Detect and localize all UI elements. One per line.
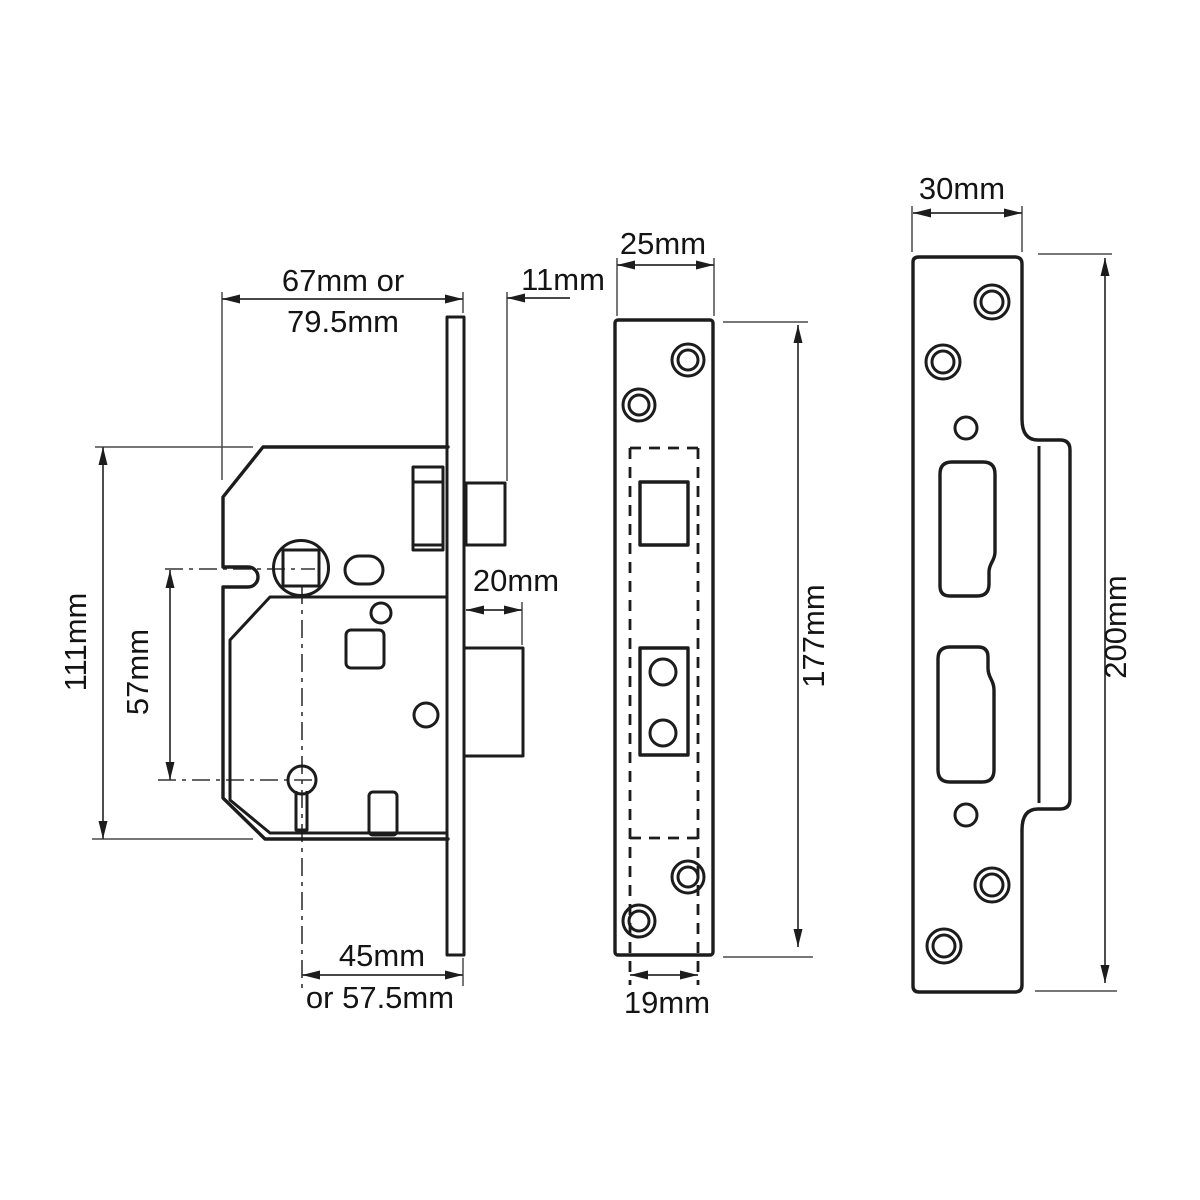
- spindle-square-hole: [283, 550, 319, 586]
- fixing-hole: [371, 603, 391, 623]
- dimension-spindle-to-key: 57mm: [120, 570, 170, 780]
- diagram-canvas: 67mm or 79.5mm 11mm 111mm 57mm 20mm: [0, 0, 1200, 1200]
- dimension-latch-projection: 11mm: [507, 262, 605, 481]
- forend-side: [447, 317, 464, 955]
- dimension-faceplate-width: 25mm: [617, 226, 714, 316]
- bolt-pin: [650, 659, 676, 685]
- dimension-bolt-throw: 20mm: [466, 563, 559, 645]
- label-faceplate-height: 177mm: [796, 584, 831, 687]
- latch-follower-block: [413, 467, 443, 550]
- bottom-slot: [369, 792, 397, 835]
- strike-plate-outline: [913, 257, 1070, 992]
- latch-bolt: [466, 483, 505, 545]
- dimension-strike-height: 200mm: [1035, 254, 1133, 991]
- label-strike-height: 200mm: [1098, 575, 1133, 678]
- strike-deadbolt-opening: [938, 647, 994, 782]
- screw-hole: [672, 861, 704, 893]
- label-faceplate-width: 25mm: [620, 226, 706, 261]
- deadbolt-front: [640, 648, 688, 755]
- label-backset-alt: or 57.5mm: [306, 980, 454, 1015]
- lock-body-view: 67mm or 79.5mm 11mm 111mm 57mm 20mm: [58, 262, 605, 1015]
- screw-hole: [926, 345, 960, 379]
- follower-slot: [345, 556, 383, 584]
- dimension-faceplate-height: 177mm: [723, 322, 831, 957]
- dimension-strike-width: 30mm: [912, 171, 1022, 252]
- deadbolt: [464, 648, 523, 756]
- fixing-hole: [955, 804, 977, 826]
- strike-plate-view: 30mm 200mm: [912, 171, 1133, 992]
- strike-latch-opening: [940, 462, 995, 596]
- latch-front: [640, 482, 688, 545]
- screw-hole: [975, 285, 1009, 319]
- screw-hole: [975, 868, 1009, 902]
- screw-hole: [672, 344, 704, 376]
- dimension-backset: 45mm or 57.5mm: [302, 938, 463, 1015]
- label-latch-projection: 11mm: [521, 262, 605, 297]
- screw-hole: [623, 389, 655, 421]
- label-strike-width: 30mm: [919, 171, 1005, 206]
- label-case-width: 67mm or: [282, 263, 404, 298]
- label-case-height: 111mm: [58, 593, 93, 692]
- faceplate-view: 25mm 177mm 19mm: [615, 226, 831, 1020]
- label-faceplate-inner-width: 19mm: [624, 985, 710, 1020]
- screw-hole: [623, 905, 655, 937]
- bolt-pin: [650, 720, 676, 746]
- label-case-width-alt: 79.5mm: [287, 304, 399, 339]
- fixing-hole: [414, 703, 438, 727]
- label-bolt-throw: 20mm: [473, 563, 559, 598]
- mortice-lock-technical-drawing: 67mm or 79.5mm 11mm 111mm 57mm 20mm: [0, 0, 1200, 1200]
- label-backset: 45mm: [339, 938, 425, 973]
- faceplate-front: [615, 320, 713, 955]
- fixing-hole: [955, 417, 977, 439]
- label-spindle-to-key: 57mm: [120, 629, 155, 715]
- lever-pack-window: [346, 630, 384, 668]
- screw-hole: [927, 929, 961, 963]
